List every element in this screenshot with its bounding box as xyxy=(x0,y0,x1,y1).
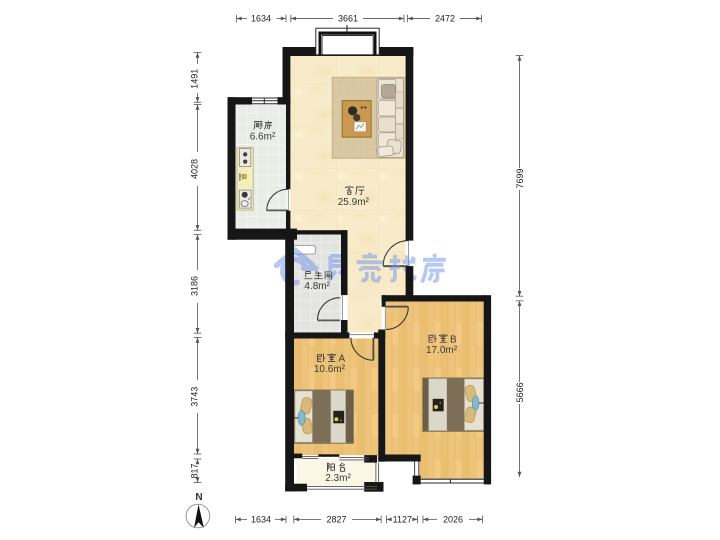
svg-text:4028: 4028 xyxy=(190,159,200,179)
svg-text:2.3m²: 2.3m² xyxy=(325,473,351,484)
svg-text:1634: 1634 xyxy=(251,514,271,524)
svg-text:3186: 3186 xyxy=(190,276,200,296)
svg-text:6.6m²: 6.6m² xyxy=(250,131,276,142)
svg-text:1491: 1491 xyxy=(190,69,200,89)
svg-text:N: N xyxy=(195,492,202,503)
svg-text:3661: 3661 xyxy=(338,14,358,24)
svg-text:2026: 2026 xyxy=(443,514,463,524)
svg-text:1127: 1127 xyxy=(393,514,412,524)
svg-text:4.8m²: 4.8m² xyxy=(304,281,330,292)
svg-text:5666: 5666 xyxy=(515,382,525,402)
svg-text:3743: 3743 xyxy=(190,387,200,407)
svg-text:B: B xyxy=(450,334,457,345)
svg-text:1634: 1634 xyxy=(251,14,271,24)
svg-text:2472: 2472 xyxy=(435,14,455,24)
svg-text:817: 817 xyxy=(190,463,200,478)
svg-text:25.9m²: 25.9m² xyxy=(338,197,370,208)
svg-text:7699: 7699 xyxy=(515,168,525,188)
svg-text:A: A xyxy=(339,354,346,365)
svg-text:10.6m²: 10.6m² xyxy=(314,364,346,375)
svg-text:17.0m²: 17.0m² xyxy=(426,345,458,356)
svg-text:2827: 2827 xyxy=(326,514,346,524)
